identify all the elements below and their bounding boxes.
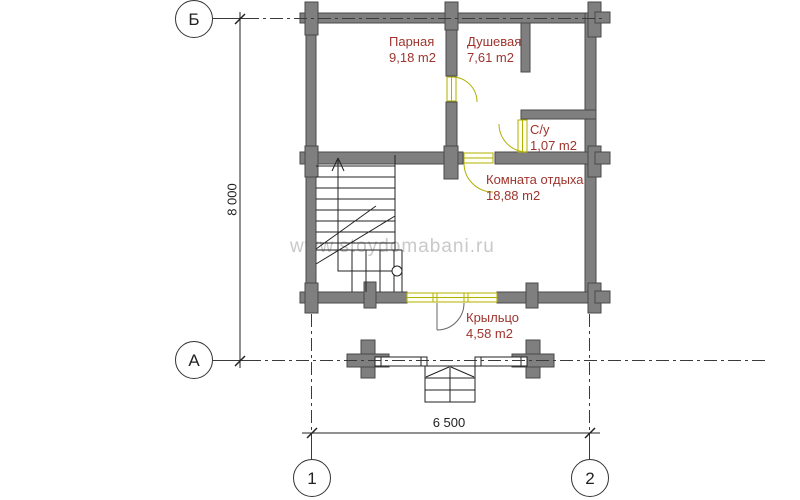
entrance-steps: [425, 366, 475, 402]
shower-stub-wall: [521, 23, 530, 72]
axis-marker-2: 2: [571, 459, 609, 497]
room-name: С/у: [530, 122, 577, 138]
post: [595, 12, 610, 23]
post: [595, 291, 610, 303]
floor-plan: www.stoydomabani.ru: [0, 0, 800, 500]
post: [595, 152, 610, 164]
room-area: 18,88 m2: [486, 188, 584, 204]
dimension-lines: [235, 12, 600, 438]
axis-lines: [213, 19, 768, 460]
post: [305, 146, 318, 177]
post: [444, 146, 458, 179]
room-name: Комната отдыха: [486, 172, 584, 188]
post: [526, 283, 538, 308]
room-name: Душевая: [467, 34, 521, 50]
room-area: 4,58 m2: [466, 326, 519, 342]
dimension-width: 6 500: [409, 415, 489, 430]
room-area: 7,61 m2: [467, 50, 521, 66]
room-label-porch: Крыльцо 4,58 m2: [466, 310, 519, 342]
axis-marker-1: 1: [293, 459, 331, 497]
stair-direction-arrow: [332, 158, 402, 276]
room-name: Крыльцо: [466, 310, 519, 326]
porch-railing-left: [375, 357, 427, 366]
post: [305, 283, 318, 313]
plan-drawing: [0, 0, 800, 500]
door-swing-arc: [437, 303, 464, 330]
sauna-divider-upper: [446, 23, 457, 76]
post: [445, 2, 458, 30]
room-label-parnaya: Парная 9,18 m2: [389, 34, 436, 66]
room-name: Парная: [389, 34, 436, 50]
porch: [375, 357, 527, 402]
sauna-divider-lower: [446, 102, 457, 152]
axis-marker-a: А: [175, 341, 213, 379]
room-label-lounge: Комната отдыха 18,88 m2: [486, 172, 584, 204]
room-label-wc: С/у 1,07 m2: [530, 122, 577, 154]
sauna-door: [447, 77, 477, 102]
room-area: 1,07 m2: [530, 138, 577, 154]
wc-wall: [521, 110, 596, 119]
wc-door: [499, 120, 527, 152]
dimension-height: 8 000: [225, 165, 240, 235]
porch-railing-right: [475, 357, 527, 366]
staircase: [316, 155, 402, 292]
middle-wall-left: [300, 152, 463, 164]
room-label-dushevaya: Душевая 7,61 m2: [467, 34, 521, 66]
room-area: 9,18 m2: [389, 50, 436, 66]
axis-marker-b: Б: [175, 0, 213, 38]
